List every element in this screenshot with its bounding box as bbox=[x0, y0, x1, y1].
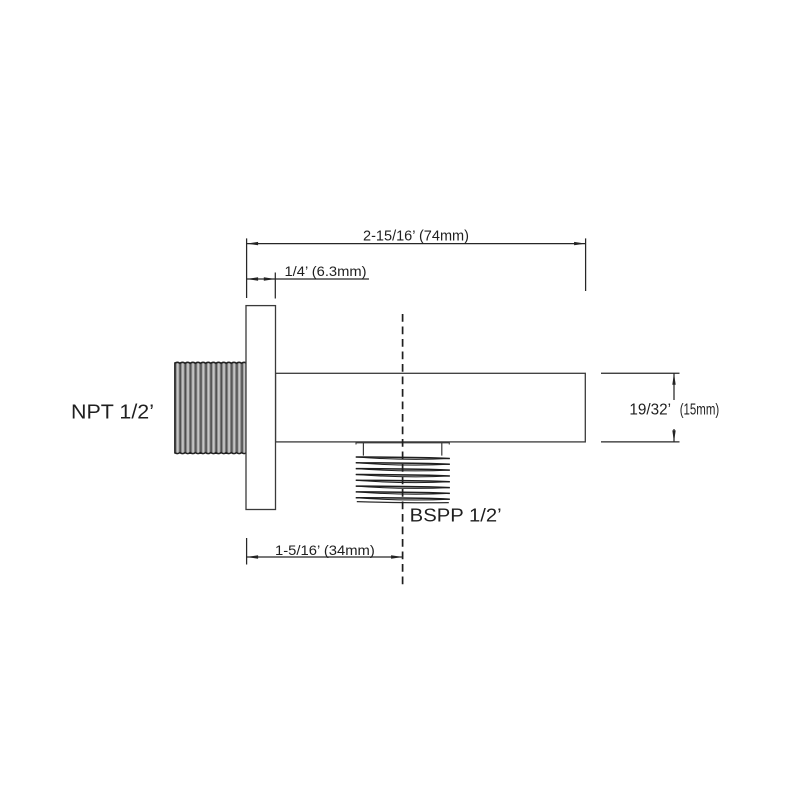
svg-text:BSPP 1/2’: BSPP 1/2’ bbox=[410, 505, 502, 526]
svg-text:2-15/16’ (74mm): 2-15/16’ (74mm) bbox=[363, 228, 469, 244]
svg-text:1-5/16’ (34mm): 1-5/16’ (34mm) bbox=[275, 542, 375, 558]
svg-text:NPT 1/2’: NPT 1/2’ bbox=[71, 402, 154, 424]
svg-text:1/4’ (6.3mm): 1/4’ (6.3mm) bbox=[285, 264, 367, 280]
svg-text:(15mm): (15mm) bbox=[680, 401, 720, 418]
svg-text:19/32’: 19/32’ bbox=[629, 401, 671, 418]
